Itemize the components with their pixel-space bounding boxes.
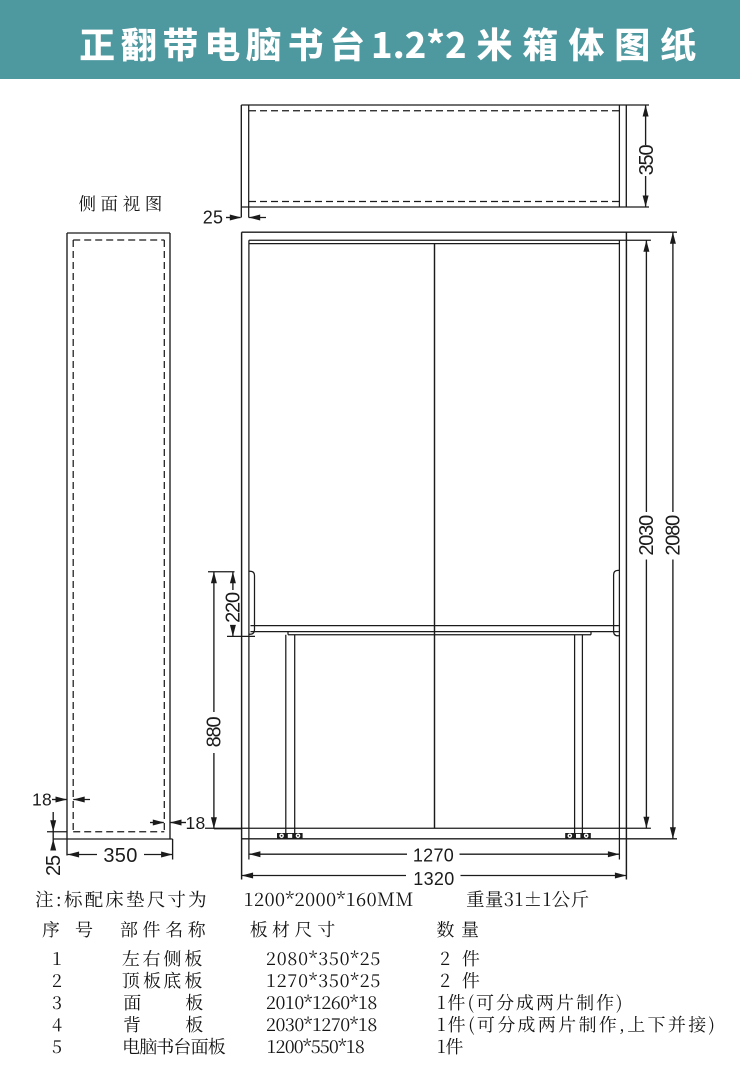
- svg-text:18: 18: [185, 813, 205, 833]
- svg-text:220: 220: [223, 592, 245, 623]
- svg-text:25: 25: [43, 855, 65, 876]
- svg-text:350: 350: [103, 845, 137, 867]
- svg-text:25: 25: [203, 207, 224, 227]
- svg-text:1320: 1320: [413, 869, 454, 889]
- svg-text:1270: 1270: [413, 845, 454, 865]
- svg-text:2080: 2080: [663, 515, 685, 556]
- svg-text:880: 880: [204, 717, 226, 748]
- svg-text:350: 350: [636, 145, 658, 176]
- svg-text:18: 18: [32, 789, 52, 809]
- svg-text:2030: 2030: [636, 515, 658, 556]
